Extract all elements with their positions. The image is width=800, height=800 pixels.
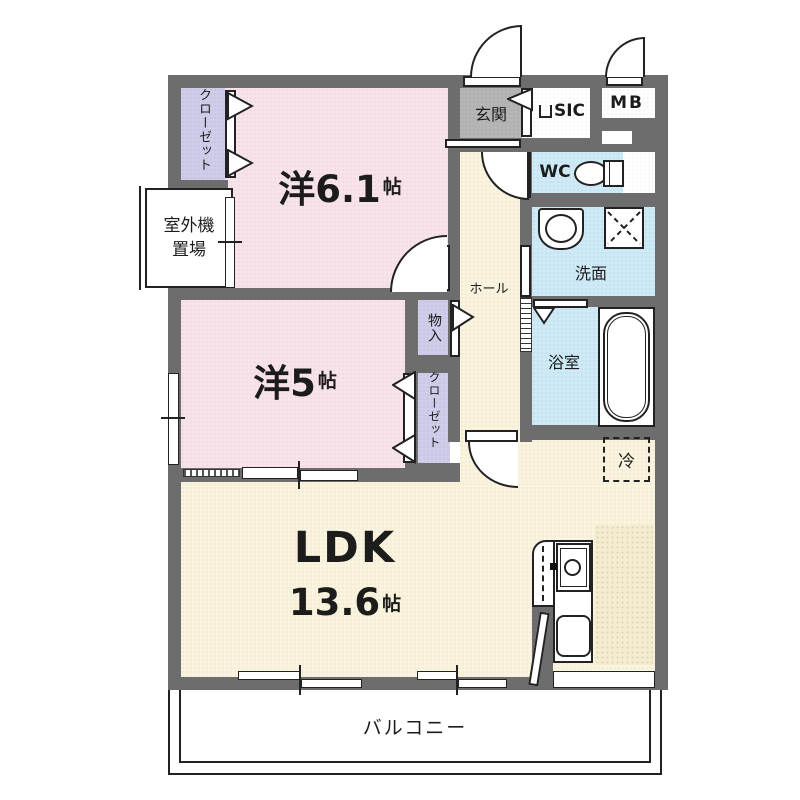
entrance-door-leaf	[463, 76, 521, 87]
closet1-label: クローゼット	[185, 106, 221, 154]
outdoor-unit-outer-line	[139, 186, 141, 290]
kitchen-sink-icon	[556, 615, 591, 657]
washbasin-bowl-icon	[545, 214, 577, 243]
bathroom-label: 浴室	[532, 347, 596, 375]
sic-label: SIC	[534, 98, 590, 124]
wall-segment	[590, 88, 602, 152]
sliding-door-panel	[242, 467, 298, 479]
kitchen-floor-texture	[595, 525, 653, 665]
closet2-door-triangle	[392, 371, 416, 401]
sic-step-mark	[539, 105, 552, 118]
fridge-label: 冷	[603, 437, 650, 482]
closet2-label: クローゼット	[419, 388, 449, 432]
wall-right	[655, 75, 668, 690]
balcony-window-tick	[456, 665, 458, 695]
closet2-door-triangle	[392, 434, 416, 464]
ldk-label: LDK	[230, 522, 460, 574]
wall-segment	[520, 193, 668, 207]
bedroom2-label: 洋5帖	[195, 352, 395, 407]
kitchen-handle-dot	[550, 563, 557, 570]
sliding-door-tick	[298, 461, 300, 489]
storage-door-triangle	[452, 304, 475, 332]
mb-door-leaf	[606, 76, 643, 86]
ldk-size-label: 13.6帖	[230, 578, 460, 626]
sliding-door-hatch	[183, 469, 240, 477]
bedroom1-label: 洋6.1帖	[240, 158, 440, 213]
bathtub-inner-line	[607, 316, 646, 418]
toilet-tank-icon	[603, 160, 624, 187]
window	[168, 373, 179, 465]
balcony-window-tick	[299, 665, 301, 695]
wall-notch	[602, 131, 632, 144]
entrance-step	[445, 139, 521, 148]
bathroom-folding-door-icon	[533, 307, 556, 325]
floorplan: 室外機置場 バルコニー	[0, 0, 800, 800]
toilet-tank-line	[609, 162, 610, 185]
washroom-label: 洗面	[558, 258, 624, 286]
balcony-window-panel	[238, 671, 300, 680]
washer-pan-cross-icon	[604, 207, 644, 249]
mb-door-arc	[605, 37, 645, 77]
window-tick	[218, 241, 242, 243]
ldk-door-leaf	[465, 430, 518, 442]
wall-top	[168, 75, 668, 88]
storage-label: 物入	[424, 306, 444, 350]
stove-burner-icon	[564, 559, 581, 576]
kitchen-counter-dash	[542, 546, 544, 601]
balcony-window-panel	[458, 679, 507, 688]
hall-label: ホール	[456, 274, 522, 300]
wall-segment	[405, 463, 460, 482]
balcony-window-wide	[553, 671, 655, 688]
window-tick	[161, 417, 185, 419]
balcony-window-panel	[301, 679, 362, 688]
wc-label: WC	[534, 158, 576, 186]
wall-hatch-strip	[520, 297, 532, 352]
entrance-door-arc	[470, 25, 522, 77]
balcony-label: バルコニー	[179, 706, 651, 746]
outdoor-unit-label: 室外機置場	[145, 205, 233, 271]
closet1-door-triangle	[227, 92, 254, 121]
balcony-window-panel	[417, 671, 457, 680]
mb-label: MB	[602, 90, 652, 116]
room-wc-niche	[623, 152, 655, 193]
sliding-door-panel	[300, 470, 358, 481]
entrance-label: 玄関	[460, 100, 522, 126]
